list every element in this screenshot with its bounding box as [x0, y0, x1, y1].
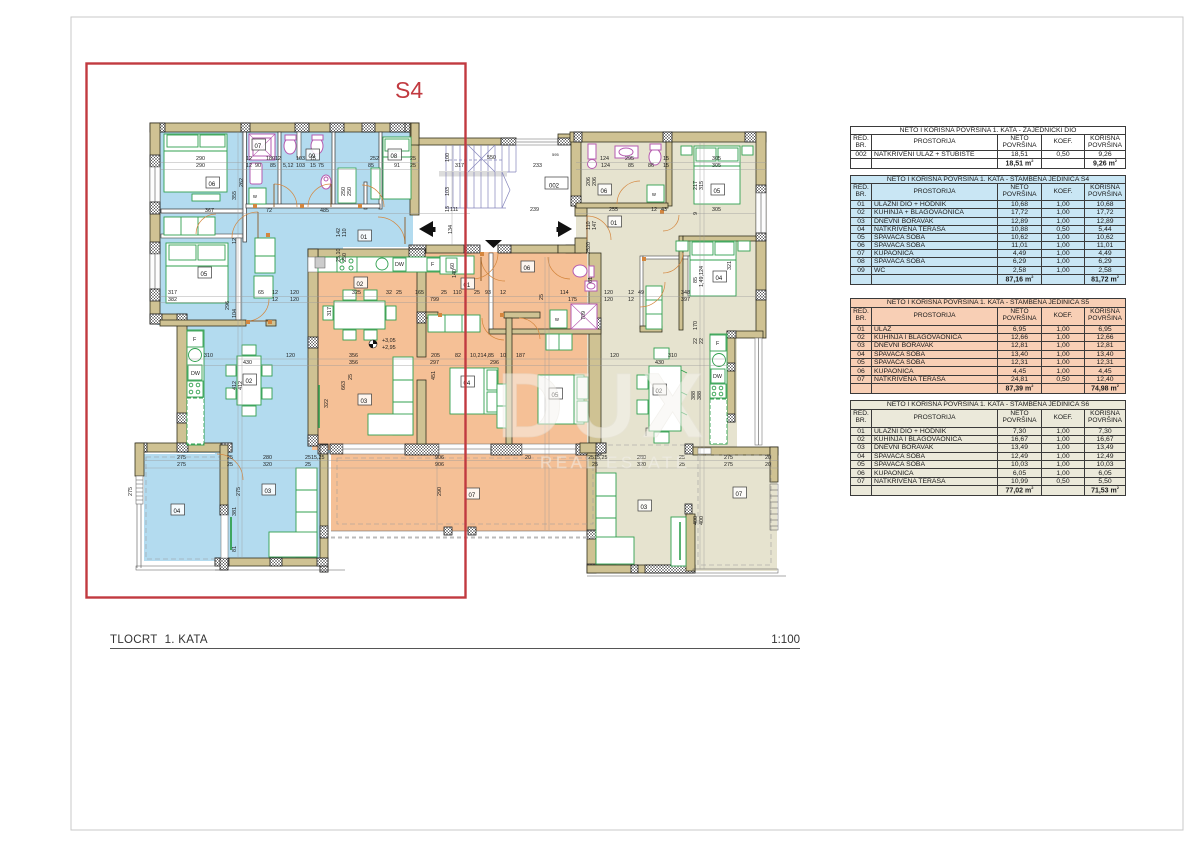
svg-text:430: 430 [243, 360, 252, 366]
svg-text:147: 147 [592, 221, 598, 230]
svg-text:DW: DW [713, 374, 723, 380]
svg-text:103: 103 [445, 187, 451, 196]
svg-text:310: 310 [204, 353, 213, 359]
svg-text:12: 12 [272, 297, 278, 303]
svg-text:15: 15 [663, 156, 669, 162]
svg-text:20: 20 [765, 455, 771, 461]
svg-text:262: 262 [239, 178, 245, 187]
svg-text:451: 451 [431, 371, 437, 380]
svg-text:+2,95: +2,95 [382, 345, 396, 351]
svg-text:111: 111 [450, 207, 458, 213]
svg-text:12: 12 [500, 290, 506, 296]
svg-text:25: 25 [410, 163, 416, 169]
svg-text:04: 04 [174, 509, 181, 515]
svg-text:290: 290 [196, 163, 205, 169]
svg-text:05: 05 [714, 189, 721, 195]
svg-text:170: 170 [693, 321, 699, 330]
svg-text:03: 03 [361, 399, 368, 405]
svg-text:124: 124 [600, 156, 609, 162]
svg-text:15: 15 [310, 156, 316, 162]
svg-text:305: 305 [712, 156, 721, 162]
svg-text:12: 12 [628, 297, 634, 303]
svg-text:296: 296 [225, 301, 231, 310]
svg-text:134: 134 [448, 225, 454, 234]
svg-text:12: 12 [246, 163, 252, 169]
svg-text:12: 12 [275, 156, 281, 162]
svg-text:325: 325 [352, 290, 361, 296]
svg-text:120: 120 [604, 290, 613, 296]
svg-text:297: 297 [430, 360, 439, 366]
svg-text:82: 82 [455, 353, 461, 359]
svg-text:120: 120 [604, 297, 613, 303]
svg-text:305: 305 [712, 207, 721, 213]
svg-text:91: 91 [394, 163, 400, 169]
svg-text:25: 25 [348, 374, 354, 380]
svg-text:25: 25 [227, 462, 233, 468]
svg-text:05: 05 [201, 272, 208, 278]
svg-text:348: 348 [681, 290, 690, 296]
svg-text:595: 595 [552, 152, 559, 157]
svg-text:25: 25 [474, 290, 480, 296]
svg-text:485: 485 [320, 208, 329, 214]
svg-text:w: w [252, 194, 257, 200]
svg-text:12: 12 [232, 238, 238, 244]
svg-text:400: 400 [699, 516, 705, 525]
svg-text:239: 239 [530, 207, 539, 213]
svg-text:165: 165 [415, 290, 424, 296]
svg-text:367: 367 [205, 208, 214, 214]
svg-text:85: 85 [270, 163, 276, 169]
svg-text:03: 03 [265, 489, 272, 495]
svg-text:2520: 2520 [586, 242, 592, 254]
svg-text:REAL ESTATE: REAL ESTATE [540, 453, 691, 472]
svg-text:81: 81 [232, 546, 238, 552]
svg-text:S4: S4 [395, 77, 423, 103]
svg-text:DW: DW [191, 371, 201, 377]
svg-text:103: 103 [296, 156, 305, 162]
svg-text:275: 275 [177, 462, 186, 468]
svg-text:06: 06 [524, 266, 531, 272]
svg-text:75: 75 [318, 163, 324, 169]
svg-text:317: 317 [455, 163, 464, 169]
svg-text:08: 08 [391, 154, 398, 160]
svg-text:07: 07 [255, 144, 262, 150]
svg-text:799: 799 [430, 297, 439, 303]
svg-text:120: 120 [290, 290, 299, 296]
svg-text:356: 356 [349, 360, 358, 366]
svg-text:22: 22 [699, 338, 705, 344]
svg-text:175: 175 [568, 297, 577, 303]
svg-text:104: 104 [232, 309, 238, 318]
svg-text:290: 290 [196, 156, 205, 162]
svg-text:DUX: DUX [497, 355, 709, 457]
svg-text:06: 06 [209, 182, 216, 188]
svg-text:120: 120 [290, 297, 299, 303]
svg-text:25: 25 [539, 294, 545, 300]
svg-text:07: 07 [736, 492, 743, 498]
svg-text:140: 140 [452, 269, 458, 278]
svg-text:275: 275 [236, 487, 242, 496]
svg-text:49: 49 [638, 290, 644, 296]
svg-text:25: 25 [227, 455, 233, 461]
svg-text:355: 355 [232, 191, 238, 200]
svg-text:12: 12 [246, 156, 252, 162]
svg-text:2515,25: 2515,25 [305, 455, 325, 461]
svg-text:65: 65 [258, 290, 264, 296]
svg-text:85: 85 [368, 163, 374, 169]
svg-text:20: 20 [765, 462, 771, 468]
svg-text:90: 90 [255, 163, 261, 169]
svg-text:709: 709 [581, 311, 587, 320]
svg-text:DW: DW [395, 262, 405, 268]
svg-text:663: 663 [341, 381, 347, 390]
svg-text:85: 85 [628, 163, 634, 169]
svg-text:180: 180 [266, 156, 275, 162]
svg-text:12: 12 [628, 290, 634, 296]
svg-text:320: 320 [263, 462, 272, 468]
svg-text:906: 906 [435, 462, 444, 468]
svg-text:15: 15 [663, 163, 669, 169]
svg-text:12: 12 [651, 207, 657, 213]
svg-text:04: 04 [716, 276, 723, 282]
svg-text:205: 205 [431, 353, 440, 359]
svg-text:275: 275 [177, 455, 186, 461]
svg-text:280: 280 [263, 455, 272, 461]
svg-text:25: 25 [396, 290, 402, 296]
svg-text:305: 305 [712, 163, 721, 169]
svg-text:12: 12 [272, 290, 278, 296]
svg-text:72: 72 [266, 208, 272, 214]
svg-text:252: 252 [370, 156, 379, 162]
svg-text:02: 02 [357, 282, 364, 288]
svg-text:110: 110 [453, 290, 462, 296]
svg-text:10,214,85: 10,214,85 [470, 353, 494, 359]
svg-text:322: 322 [324, 399, 330, 408]
svg-text:290: 290 [437, 487, 443, 496]
svg-text:275: 275 [128, 487, 134, 496]
svg-text:397: 397 [681, 297, 690, 303]
svg-text:9: 9 [693, 212, 699, 215]
svg-text:03: 03 [641, 505, 648, 511]
svg-text:412: 412 [238, 381, 244, 390]
svg-text:02: 02 [246, 379, 253, 385]
svg-text:100: 100 [445, 153, 451, 162]
svg-text:86: 86 [648, 163, 654, 169]
svg-text:317: 317 [327, 307, 333, 316]
svg-text:01: 01 [361, 235, 368, 241]
svg-text:233: 233 [533, 163, 542, 169]
svg-text:250: 250 [347, 187, 353, 196]
svg-text:15: 15 [445, 206, 451, 212]
svg-text:93: 93 [485, 290, 491, 296]
svg-text:110: 110 [342, 228, 348, 237]
svg-text:382: 382 [168, 297, 177, 303]
svg-text:60: 60 [450, 263, 456, 269]
svg-text:1,49,124: 1,49,124 [699, 266, 705, 287]
svg-text:255: 255 [609, 207, 618, 213]
svg-text:275: 275 [724, 455, 733, 461]
svg-text:01: 01 [611, 221, 618, 227]
svg-text:124: 124 [601, 163, 610, 169]
svg-text:25: 25 [410, 156, 416, 162]
svg-text:06: 06 [601, 189, 608, 195]
svg-text:114: 114 [560, 290, 569, 296]
svg-text:315: 315 [699, 181, 705, 190]
svg-text:61: 61 [588, 277, 594, 283]
svg-text:381: 381 [232, 507, 238, 516]
svg-text:103: 103 [296, 163, 305, 169]
svg-text:07: 07 [469, 493, 476, 499]
svg-text:321: 321 [727, 261, 733, 270]
svg-text:5,12: 5,12 [283, 163, 294, 169]
svg-text:25: 25 [305, 462, 311, 468]
svg-text:250: 250 [342, 253, 348, 262]
svg-text:206: 206 [592, 177, 598, 186]
svg-text:25: 25 [441, 290, 447, 296]
svg-text:43: 43 [661, 207, 667, 213]
svg-text:15: 15 [310, 163, 316, 169]
svg-text:32: 32 [386, 290, 392, 296]
svg-text:295: 295 [625, 156, 634, 162]
svg-text:w: w [554, 317, 559, 323]
svg-text:906: 906 [435, 455, 444, 461]
svg-text:120: 120 [286, 353, 295, 359]
svg-text:550: 550 [487, 155, 496, 161]
svg-text:+3,05: +3,05 [382, 338, 396, 344]
svg-text:w: w [651, 192, 656, 198]
svg-text:275: 275 [724, 462, 733, 468]
svg-text:002: 002 [549, 184, 560, 190]
svg-text:356: 356 [349, 353, 358, 359]
svg-text:317: 317 [168, 290, 177, 296]
